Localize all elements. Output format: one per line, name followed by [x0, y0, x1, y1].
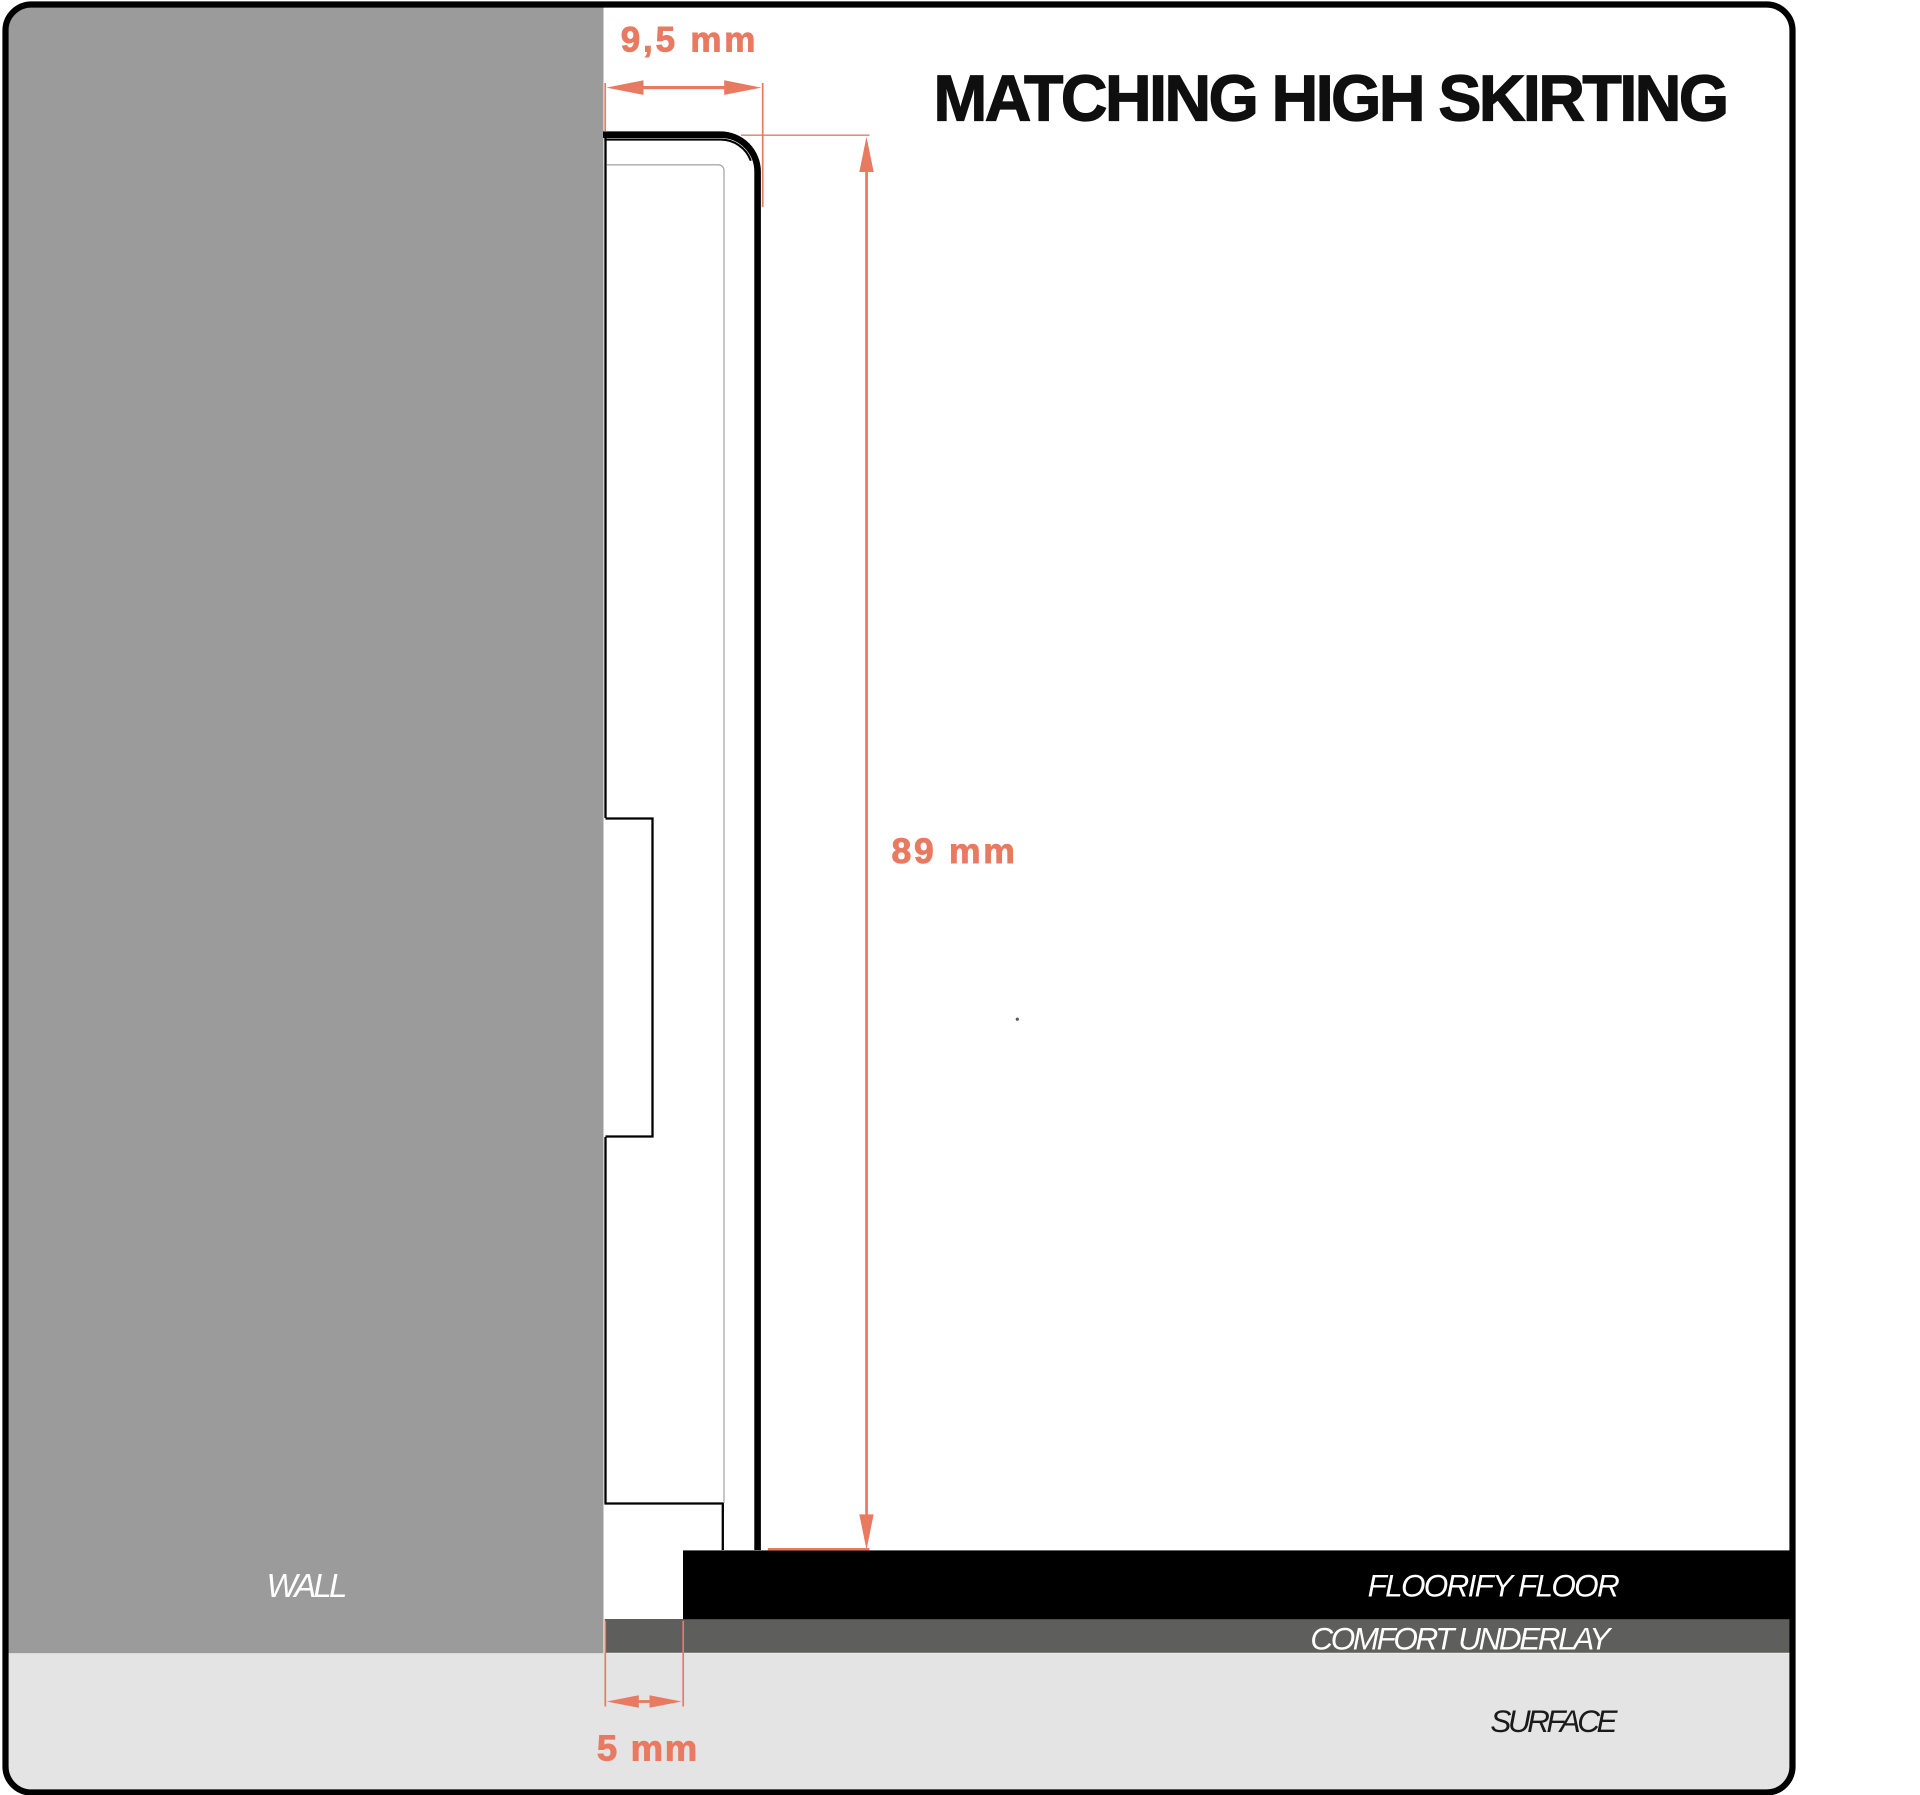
- svg-text:WALL: WALL: [266, 1567, 346, 1604]
- svg-text:9,5 mm: 9,5 mm: [621, 21, 758, 60]
- svg-text:89 mm: 89 mm: [892, 831, 1018, 871]
- svg-text:FLOORIFY FLOOR: FLOORIFY FLOOR: [1368, 1567, 1619, 1603]
- svg-text:SURFACE: SURFACE: [1490, 1703, 1618, 1739]
- svg-text:5 mm: 5 mm: [597, 1728, 699, 1769]
- svg-text:COMFORT UNDERLAY: COMFORT UNDERLAY: [1310, 1621, 1612, 1657]
- svg-text:MATCHING HIGH SKIRTING: MATCHING HIGH SKIRTING: [933, 63, 1726, 135]
